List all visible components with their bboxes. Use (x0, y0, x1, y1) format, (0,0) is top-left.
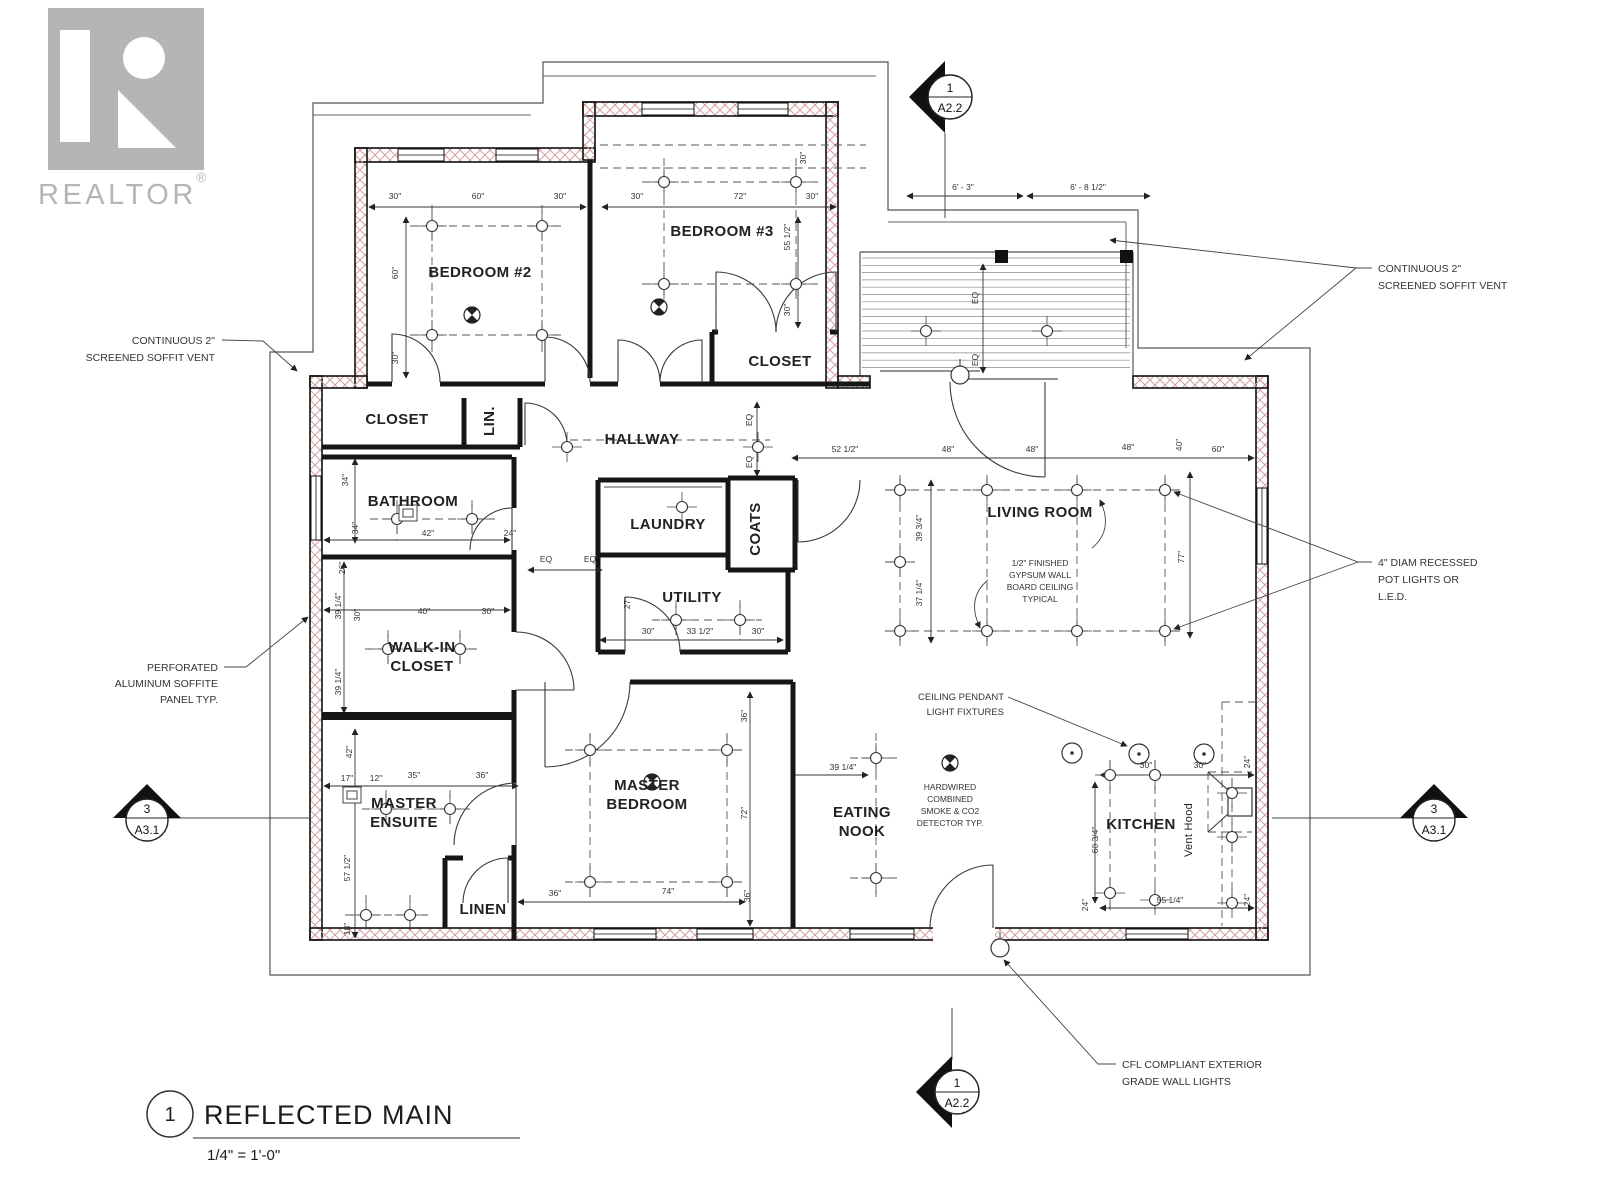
dimension-label: 74" (662, 886, 674, 896)
circle (405, 910, 416, 921)
circle (537, 221, 548, 232)
dimension-label: 30" (752, 626, 764, 636)
pot-light-icon (1217, 822, 1247, 852)
ceiling-fixture-icon (651, 299, 667, 315)
dimension-label: 36" (739, 710, 749, 722)
deck-post (995, 250, 1008, 263)
drawing-scale: 1/4" = 1'-0" (207, 1147, 280, 1164)
dimension-label: 39 3/4" (914, 515, 924, 542)
dimension-label: 17" (341, 773, 353, 783)
dimension-label: 39 1/4" (333, 669, 343, 696)
dimension-label: 35" (408, 770, 420, 780)
circle (361, 910, 372, 921)
dimension-label: 30" (482, 606, 494, 616)
pot-light-icon (861, 743, 891, 773)
pot-light-icon (351, 900, 381, 930)
dimension-label: 36" (742, 890, 752, 902)
dimension-label: 42" (344, 746, 354, 758)
dimension-label: 30" (554, 191, 566, 201)
pot-light-icon (1032, 316, 1062, 346)
section-marker-left: 3 A3.1 (113, 784, 310, 841)
pot-light-icon (911, 316, 941, 346)
section-number: 3 (144, 802, 151, 816)
deck (860, 250, 1133, 379)
ceiling-fixture-icon (464, 307, 480, 323)
pot-light-icon (649, 167, 679, 197)
dimension-label: 40" (418, 606, 430, 616)
circle (537, 330, 548, 341)
realtor-watermark: REALTOR ® (38, 8, 207, 211)
dimension-label: 39 1/4" (830, 762, 857, 772)
circle (1070, 751, 1074, 755)
drawing-title: REFLECTED MAIN (204, 1100, 454, 1130)
annotation-gypsum-note: 1/2" FINISHEDGYPSUM WALLBOARD CEILINGTYP… (1007, 558, 1074, 604)
pot-light-icon (885, 475, 915, 505)
dimension-label: 72" (734, 191, 746, 201)
rect (343, 787, 361, 803)
leader-line (1110, 240, 1372, 268)
circle (871, 873, 882, 884)
annotation-ceiling-pendant-note: CEILING PENDANTLIGHT FIXTURES (918, 692, 1004, 718)
circle (659, 177, 670, 188)
section-number: 1 (947, 81, 954, 95)
room-label: UTILITY (662, 589, 721, 606)
dimension-label: 57 1/2" (342, 855, 352, 882)
dimension-label: 55 1/4" (1157, 895, 1184, 905)
room-label: MASTERENSUITE (370, 795, 438, 831)
leader-line (1008, 697, 1127, 746)
dimension-label: 48" (1026, 444, 1038, 454)
pot-light-icon (417, 211, 447, 241)
dimension-label: 6' - 3" (952, 182, 974, 192)
section-number: 3 (1431, 802, 1438, 816)
circle (1160, 485, 1171, 496)
realtor-wordmark: REALTOR (38, 179, 197, 211)
pot-light-icon (972, 616, 1002, 646)
pot-light-icon (885, 616, 915, 646)
circle (1227, 832, 1238, 843)
section-sheet: A2.2 (938, 101, 963, 115)
dimension-label: 24" (1242, 894, 1252, 906)
drawing-number: 1 (164, 1104, 175, 1126)
circle (1160, 626, 1171, 637)
room-label: HALLWAY (605, 431, 680, 448)
section-number: 1 (954, 1076, 961, 1090)
dimension-label: 24" (1080, 899, 1090, 911)
pot-light-icon (435, 794, 465, 824)
circle (455, 644, 466, 655)
annotation-soffit-left: CONTINUOUS 2"SCREENED SOFFIT VENT (86, 335, 216, 364)
section-marker-right: 3 A3.1 (1272, 784, 1468, 841)
pot-light-icon (1150, 475, 1180, 505)
dimension-label: 18" (342, 923, 352, 935)
dimension-label: 55 1/2" (782, 224, 792, 251)
circle (1042, 326, 1053, 337)
dimension-label: 34" (340, 474, 350, 486)
circle (659, 279, 670, 290)
dimension-label: 42" (422, 528, 434, 538)
reflected-ceiling-plan: BEDROOM #2BEDROOM #3CLOSETCLOSETLIN.HALL… (0, 0, 1600, 1200)
dimension-label: 52 1/2" (832, 444, 859, 454)
pot-light-icon (712, 867, 742, 897)
pot-light-icon (1095, 878, 1125, 908)
dimension-label: EQ (540, 554, 553, 564)
circle (951, 366, 969, 384)
vent-hood (1208, 772, 1252, 832)
dimension-label: 36" (549, 888, 561, 898)
dimension-label: 72" (739, 807, 749, 819)
leader-line (224, 617, 308, 667)
circle (467, 514, 478, 525)
circle (427, 221, 438, 232)
gypsum-arrow (975, 580, 988, 628)
pot-light-icon (527, 320, 557, 350)
dimension-label: 36" (476, 770, 488, 780)
pot-light-icon (1217, 778, 1247, 808)
pot-light-icon (1150, 616, 1180, 646)
circle (1105, 888, 1116, 899)
pot-light-icon (575, 735, 605, 765)
pot-light-icon (972, 475, 1002, 505)
circle (1072, 485, 1083, 496)
annotation-cfl-note: CFL COMPLIANT EXTERIORGRADE WALL LIGHTS (1122, 1059, 1262, 1088)
dimension-label: 60" (390, 267, 400, 279)
room-label: CLOSET (748, 353, 811, 370)
dimension-label: 48" (942, 444, 954, 454)
circle (1072, 626, 1083, 637)
pot-light-icon (1062, 616, 1092, 646)
room-label: CLOSET (365, 411, 428, 428)
pot-light-icon (552, 432, 582, 462)
dimension-label: 60" (472, 191, 484, 201)
room-label: LIVING ROOM (987, 504, 1092, 521)
exhaust-fan-icon (343, 787, 361, 803)
circle (982, 626, 993, 637)
circle (427, 330, 438, 341)
room-label: BATHROOM (368, 493, 458, 510)
dimension-label: 30" (642, 626, 654, 636)
dimension-label: 34" (350, 522, 360, 534)
annotation-soffit-right: CONTINUOUS 2"SCREENED SOFFIT VENT (1378, 263, 1508, 292)
pot-light-icon (395, 900, 425, 930)
room-label: MASTERBEDROOM (606, 777, 687, 813)
room-label: KITCHEN (1106, 816, 1175, 833)
dimension-label: 30" (352, 609, 362, 621)
dimension-label: 40" (1174, 439, 1184, 451)
dimension-label: 30" (798, 152, 808, 164)
room-label: WALK-INCLOSET (389, 639, 456, 675)
dimension-label: 60" (1212, 444, 1224, 454)
circle (895, 626, 906, 637)
circle (722, 745, 733, 756)
wall-light-icon (951, 359, 969, 384)
circle (445, 804, 456, 815)
pot-light-icon (649, 269, 679, 299)
dimension-label: 30" (782, 304, 792, 316)
circle (791, 279, 802, 290)
dimension-label: EQ (744, 413, 754, 426)
circle (1137, 752, 1141, 756)
dimension-label: EQ (584, 554, 597, 564)
circle (895, 557, 906, 568)
circle (585, 877, 596, 888)
pot-light-icon (457, 504, 487, 534)
registered-mark: ® (196, 169, 207, 185)
dimension-label: EQ (970, 353, 980, 366)
circle (677, 502, 688, 513)
pot-light-icon (885, 547, 915, 577)
circle (895, 485, 906, 496)
dimension-label: 37 1/4" (914, 580, 924, 607)
dimension-label: 60 3/4" (1090, 827, 1100, 854)
dimension-label: 30" (390, 352, 400, 364)
circle (1202, 752, 1206, 756)
circle (871, 753, 882, 764)
circle (753, 442, 764, 453)
dimension-label: 30" (806, 191, 818, 201)
room-label: LIN. (481, 406, 498, 436)
dimension-label: 24" (1242, 756, 1252, 768)
dimension-label: EQ (970, 291, 980, 304)
circle (1105, 770, 1116, 781)
dimension-label: 33 1/2" (687, 626, 714, 636)
pot-light-icon (575, 867, 605, 897)
leader-line (1174, 492, 1372, 562)
dimension-label: 24" (504, 528, 516, 538)
dimension-label: 30" (631, 191, 643, 201)
circle (921, 326, 932, 337)
dimension-label: 27" (622, 597, 632, 609)
pot-light-icon (1062, 475, 1092, 505)
leader-line (1245, 268, 1356, 360)
dimension-label: 6' - 8 1/2" (1070, 182, 1106, 192)
circle (1150, 770, 1161, 781)
circle (722, 877, 733, 888)
rear-door-opening (933, 927, 995, 941)
circle (991, 939, 1009, 957)
dimension-label: 26" (337, 562, 347, 574)
circle (585, 745, 596, 756)
ceiling-fixture-icon (942, 755, 958, 771)
room-label: EATINGNOOK (833, 804, 891, 840)
room-label: BEDROOM #2 (428, 264, 531, 281)
room-label: COATS (747, 502, 764, 555)
section-marker-bottom: 1 A2.2 (916, 1008, 979, 1128)
pot-light-icon (527, 211, 557, 241)
circle (671, 615, 682, 626)
pot-light-icon (1095, 760, 1125, 790)
dimension-label: 30" (1194, 760, 1206, 770)
pot-light-icon (781, 269, 811, 299)
annotation-smoke-detector-note: HARDWIREDCOMBINEDSMOKE & CO2DETECTOR TYP… (917, 782, 984, 828)
section-marker-top: 1 A2.2 (909, 61, 972, 218)
room-label: BEDROOM #3 (670, 223, 773, 240)
dimension-label: 48" (1122, 442, 1134, 452)
circle (982, 485, 993, 496)
circle (562, 442, 573, 453)
pot-light-icon (417, 320, 447, 350)
section-sheet: A2.2 (945, 1096, 970, 1110)
dimension-label: 39 1/4" (333, 593, 343, 620)
circle (735, 615, 746, 626)
dimension-label: 77" (1176, 551, 1186, 563)
section-sheet: A3.1 (135, 823, 160, 837)
circle (1227, 898, 1238, 909)
leader-line (222, 340, 297, 371)
annotation-perforated-soffit: PERFORATEDALUMINUM SOFFITEPANEL TYP. (115, 662, 219, 706)
annotation-pot-lights-note: 4" DIAM RECESSEDPOT LIGHTS ORL.E.D. (1378, 557, 1478, 603)
section-sheet: A3.1 (1422, 823, 1447, 837)
circle (1227, 788, 1238, 799)
room-label: LINEN (460, 901, 507, 918)
room-label: Vent Hood (1183, 803, 1195, 857)
pendant-light-icon (1062, 743, 1082, 763)
dimension-label: EQ (744, 455, 754, 468)
pot-light-icon (725, 605, 755, 635)
pot-light-icon (861, 863, 891, 893)
dimension-label: 12" (370, 773, 382, 783)
circle (791, 177, 802, 188)
room-label: LAUNDRY (630, 516, 706, 533)
gypsum-arrow (1092, 500, 1105, 548)
pot-light-icon (712, 735, 742, 765)
dimension-label: 30" (389, 191, 401, 201)
title-block: 1 REFLECTED MAIN 1/4" = 1'-0" (147, 1091, 520, 1164)
roof-outline (270, 62, 1310, 975)
deck-post (1120, 250, 1133, 263)
dimension-label: 30" (1140, 760, 1152, 770)
